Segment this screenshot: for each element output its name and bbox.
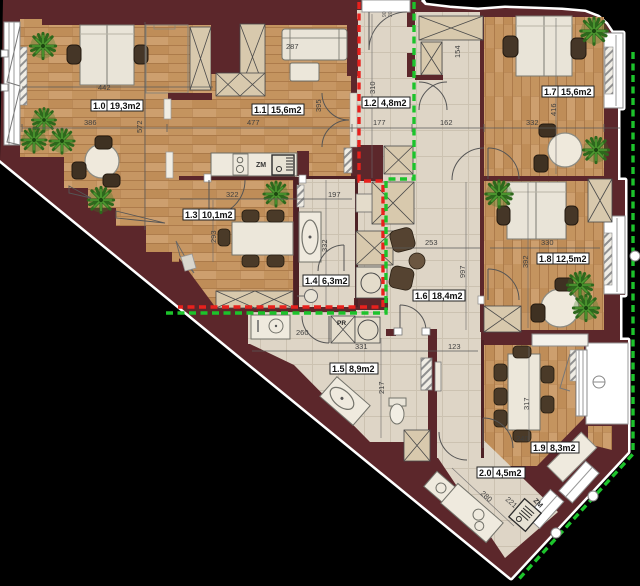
svg-text:177: 177 xyxy=(373,118,386,127)
svg-text:123: 123 xyxy=(448,342,461,351)
svg-text:477: 477 xyxy=(247,118,260,127)
svg-text:1.7: 1.7 xyxy=(544,87,557,97)
svg-text:6,3m2: 6,3m2 xyxy=(322,276,348,286)
svg-text:322: 322 xyxy=(226,190,239,199)
svg-text:392: 392 xyxy=(521,255,530,268)
svg-text:310: 310 xyxy=(368,81,377,94)
svg-text:1.8: 1.8 xyxy=(539,254,552,264)
svg-text:386: 386 xyxy=(84,118,97,127)
svg-text:18,4m2: 18,4m2 xyxy=(432,291,463,301)
svg-text:217: 217 xyxy=(377,381,386,394)
svg-text:154: 154 xyxy=(453,45,462,58)
svg-text:572: 572 xyxy=(135,120,144,133)
svg-text:1.3: 1.3 xyxy=(185,210,198,220)
svg-text:2.0: 2.0 xyxy=(479,468,492,478)
svg-text:1.9: 1.9 xyxy=(533,443,546,453)
svg-text:395: 395 xyxy=(314,99,323,112)
svg-text:293: 293 xyxy=(209,230,218,243)
svg-text:1.5: 1.5 xyxy=(332,364,345,374)
svg-text:287: 287 xyxy=(286,42,299,51)
svg-text:162: 162 xyxy=(440,118,453,127)
svg-text:8,9m2: 8,9m2 xyxy=(349,364,375,374)
svg-text:19,3m2: 19,3m2 xyxy=(110,101,141,111)
svg-text:8,3m2: 8,3m2 xyxy=(550,443,576,453)
svg-text:332: 332 xyxy=(320,239,329,252)
svg-text:240: 240 xyxy=(516,434,529,443)
svg-text:10,1m2: 10,1m2 xyxy=(202,210,233,220)
svg-text:1.6: 1.6 xyxy=(415,291,428,301)
svg-text:1.1: 1.1 xyxy=(254,105,267,115)
svg-text:1.0: 1.0 xyxy=(93,101,106,111)
svg-text:416: 416 xyxy=(549,103,558,116)
svg-text:331: 331 xyxy=(355,342,368,351)
svg-text:12,5m2: 12,5m2 xyxy=(556,254,587,264)
svg-text:1.4: 1.4 xyxy=(305,276,318,286)
svg-text:317: 317 xyxy=(522,397,531,410)
svg-text:260: 260 xyxy=(296,328,309,337)
svg-text:15,6m2: 15,6m2 xyxy=(561,87,592,97)
svg-text:ZM: ZM xyxy=(256,162,266,169)
svg-text:PR: PR xyxy=(337,320,346,327)
svg-text:4,8m2: 4,8m2 xyxy=(381,98,407,108)
svg-text:253: 253 xyxy=(425,238,438,247)
svg-text:4,5m2: 4,5m2 xyxy=(496,468,522,478)
svg-text:20: 20 xyxy=(388,11,394,17)
svg-text:442: 442 xyxy=(98,83,111,92)
svg-text:330: 330 xyxy=(541,238,554,247)
svg-text:332: 332 xyxy=(526,118,539,127)
svg-text:197: 197 xyxy=(328,190,341,199)
svg-text:1.2: 1.2 xyxy=(364,98,377,108)
svg-text:997: 997 xyxy=(458,265,467,278)
svg-text:15,6m2: 15,6m2 xyxy=(271,105,302,115)
